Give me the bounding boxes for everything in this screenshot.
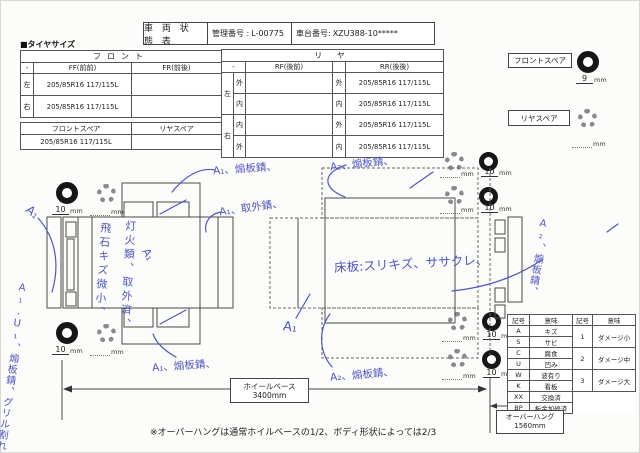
- spare-tire-table: フロントスペア リヤスペア 205/85R16 117/115L: [20, 122, 222, 150]
- legend-sym: XX: [508, 392, 530, 403]
- rear-row2-rr-size: 205/85R16 117/115L: [346, 94, 444, 115]
- wheelbase-box: ホイールベース 3400mm: [230, 378, 309, 403]
- chassis-number-value: XZU388-10*****: [333, 29, 398, 38]
- management-number-box: 管理番号 : L-00775: [207, 22, 293, 45]
- front-spare-size: 205/85R16 117/115L: [21, 135, 132, 150]
- rear-row3-rf-size: [246, 115, 333, 136]
- rear-row4-pos: 外: [234, 136, 246, 158]
- rear-row4-rr-pos: 内: [333, 136, 346, 158]
- rear-corner-cell: -: [222, 62, 246, 73]
- sheet-title: 車 両 状 態 表: [144, 21, 208, 47]
- legend-mean: 交換済: [530, 392, 573, 403]
- front-left-ff-size: 205/85R16 117/115L: [34, 74, 132, 96]
- front-row-left-label: 左: [21, 74, 34, 96]
- legend-damage-sym: 3: [573, 370, 593, 392]
- wheelbase-value: 3400mm: [253, 391, 287, 400]
- legend-damage-mean: ダメージ大: [593, 370, 636, 392]
- legend-mean: 凹み: [530, 359, 573, 370]
- front-right-ff-size: 205/85R16 117/115L: [34, 96, 132, 118]
- rear-spare-label: リヤスペア: [521, 113, 558, 124]
- front-table-title: フロント: [21, 51, 222, 63]
- col-rf-header: RF(後前): [246, 62, 333, 73]
- rear-spare-size: [132, 135, 222, 150]
- rear-table-title: リ ヤ: [222, 50, 444, 62]
- col-rr-header-spacer: [333, 62, 346, 73]
- front-spare-label: フロントスペア: [514, 55, 566, 66]
- legend-mean: キズ: [530, 326, 573, 337]
- overhang-box: オーバーハング 1560mm: [496, 410, 564, 434]
- legend-header-symbol: 記号: [508, 315, 530, 326]
- front-tire-table: フロント - FF(前前) FR(前後) 左 205/85R16 117/115…: [20, 50, 222, 118]
- wheelbase-label: ホイールベース: [243, 382, 295, 391]
- rear-row2-pos: 内: [234, 94, 246, 115]
- legend-sym: U: [508, 359, 530, 370]
- legend-sym: A: [508, 326, 530, 337]
- rear-row1-rf-size: [246, 73, 333, 94]
- legend-sym: C: [508, 348, 530, 359]
- rear-row4-rf-size: [246, 136, 333, 158]
- legend-damage-mean: ダメージ中: [593, 348, 636, 370]
- rear-left-group-label: 左: [222, 73, 234, 115]
- front-row-right-label: 右: [21, 96, 34, 118]
- front-spare-header: フロントスペア: [21, 123, 132, 135]
- rear-right-group-label: 右: [222, 115, 234, 158]
- front-spare-box: フロントスペア: [508, 53, 572, 68]
- legend-damage-sym: 1: [573, 326, 593, 348]
- overhang-value: 1560mm: [514, 422, 545, 431]
- symbol-legend-table: 記号 意味 記号 意味 A キズ 1 ダメージ小 S サビ C 腐食 2 ダメー…: [507, 314, 636, 414]
- management-number-value: L-00775: [251, 29, 284, 38]
- annotation-a1-mid: A₁: [282, 319, 298, 336]
- rear-tire-table: リ ヤ - RF(後前) RR(後後) 左 外 外 205/85R16 117/…: [221, 49, 444, 158]
- legend-sym: W: [508, 370, 530, 381]
- col-rr-header: RR(後後): [346, 62, 444, 73]
- rear-row1-pos: 外: [234, 73, 246, 94]
- rear-spare-header: リヤスペア: [132, 123, 222, 135]
- col-ff-header: FF(前前): [34, 63, 132, 74]
- overhang-label: オーバーハング: [506, 413, 555, 422]
- col-fr-header: FR(前後): [132, 63, 222, 74]
- rear-row2-rr-pos: 内: [333, 94, 346, 115]
- chassis-number-box: 車台番号: XZU388-10*****: [291, 22, 435, 45]
- rear-row1-rr-size: 205/85R16 117/115L: [346, 73, 444, 94]
- rear-row2-rf-size: [246, 94, 333, 115]
- legend-mean: 波有り: [530, 370, 573, 381]
- legend-damage-mean: ダメージ小: [593, 326, 636, 348]
- legend-mean: 看板: [530, 381, 573, 392]
- sheet-title-box: 車 両 状 態 表: [143, 22, 209, 45]
- chassis-number-label: 車台番号:: [296, 28, 331, 39]
- legend-sym: S: [508, 337, 530, 348]
- front-right-fr-size: [132, 96, 222, 118]
- front-corner-cell: -: [21, 63, 34, 74]
- legend-header-meaning2: 意味: [593, 315, 636, 326]
- legend-header-symbol2: 記号: [573, 315, 593, 326]
- legend-header-meaning: 意味: [530, 315, 573, 326]
- legend-sym: K: [508, 381, 530, 392]
- rear-row3-rr-size: 205/85R16 117/115L: [346, 115, 444, 136]
- rear-row1-rr-pos: 外: [333, 73, 346, 94]
- legend-mean: 腐食: [530, 348, 573, 359]
- legend-mean: サビ: [530, 337, 573, 348]
- legend-damage-sym: 2: [573, 348, 593, 370]
- front-left-fr-size: [132, 74, 222, 96]
- management-number-label: 管理番号 :: [212, 28, 249, 39]
- rear-row3-rr-pos: 外: [333, 115, 346, 136]
- vehicle-condition-sheet: 車 両 状 態 表 管理番号 : L-00775 車台番号: XZU388-10…: [0, 0, 640, 453]
- rear-row3-pos: 内: [234, 115, 246, 136]
- rear-row4-rr-size: 205/85R16 117/115L: [346, 136, 444, 158]
- rear-spare-box: リヤスペア: [508, 110, 570, 126]
